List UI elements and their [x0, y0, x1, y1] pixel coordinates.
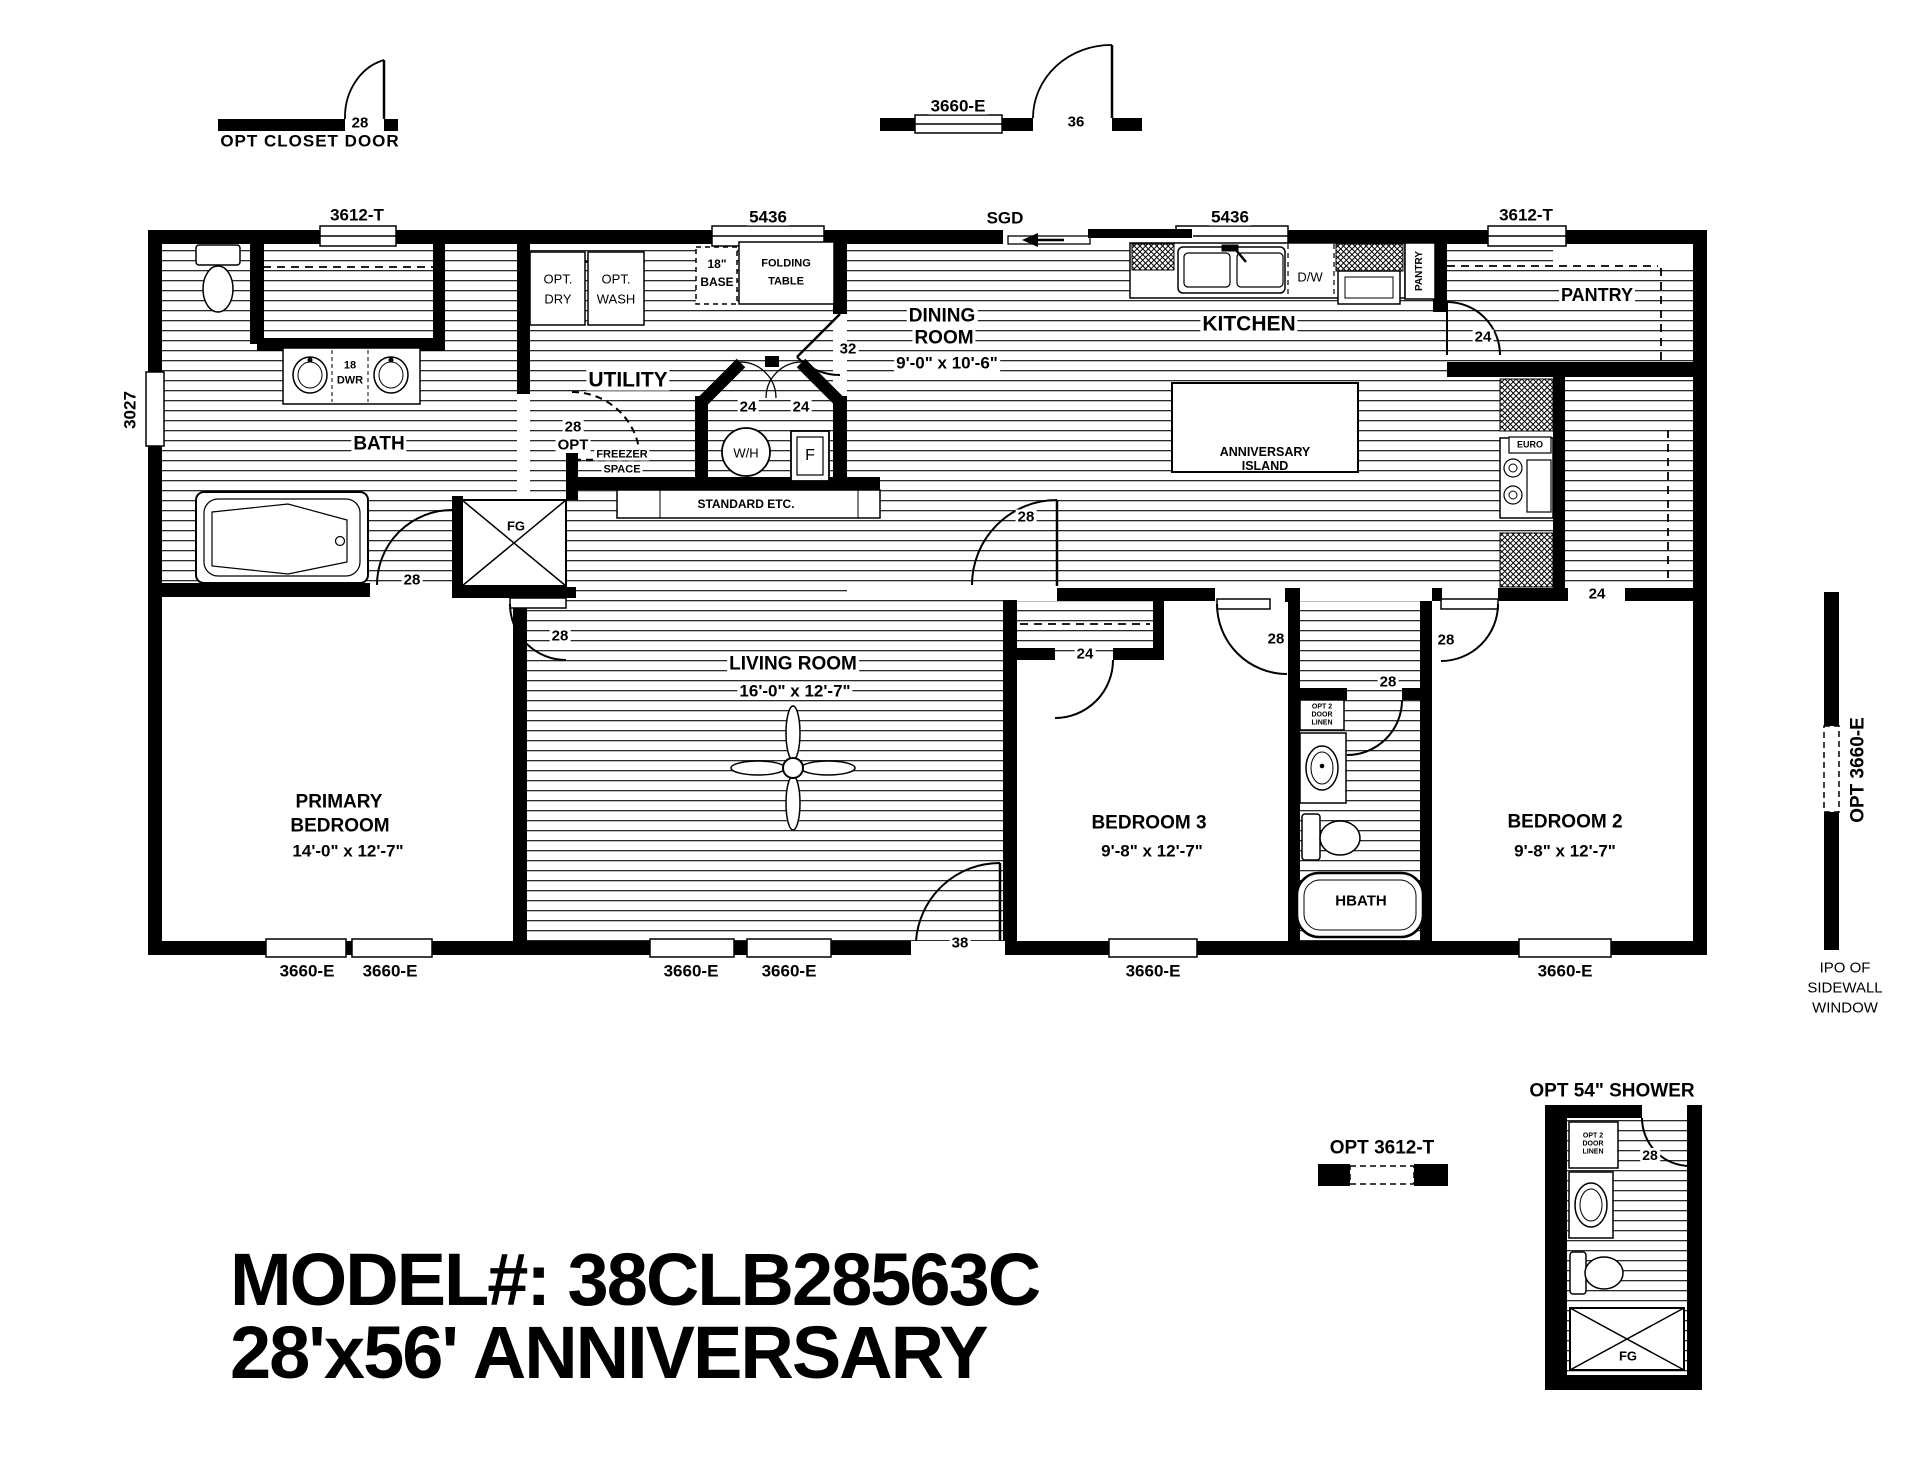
- linen-label-2: DOOR: [1310, 712, 1335, 719]
- island-label-1: ANNIVERSARY: [1218, 446, 1313, 459]
- window-label-3660e-3: 3660-E: [662, 963, 721, 980]
- primary-door-size: 28: [550, 629, 571, 644]
- kitchen-label: KITCHEN: [1200, 314, 1297, 335]
- bed3-closet-door-size: 24: [1075, 647, 1096, 662]
- standard-etc-label: STANDARD ETC.: [695, 498, 796, 510]
- window-label-3660e-1: 3660-E: [278, 963, 337, 980]
- bath-opt-door-size-1: 28: [563, 420, 584, 435]
- utility-label: UTILITY: [586, 370, 669, 391]
- folding-table-label-2: TABLE: [766, 277, 806, 288]
- water-heater-label: W/H: [731, 447, 760, 460]
- wh-door-size-1: 24: [738, 400, 759, 415]
- base-cabinet-label-2: BASE: [698, 276, 735, 288]
- bath-label: BATH: [351, 435, 406, 454]
- bed2-dims: 9'-8" x 12'-7": [1512, 843, 1618, 860]
- bed2-label: BEDROOM 2: [1505, 813, 1624, 832]
- window-label-3612t-left: 3612-T: [328, 207, 386, 224]
- sidewall-opt-label: OPT 3660-E: [1849, 715, 1868, 825]
- bed3-door-size: 28: [1266, 632, 1287, 647]
- pantry-door-size: 24: [1473, 330, 1494, 345]
- floorplan-page: OPT CLOSET DOOR 28 3660-E 36 3612-T 5436…: [0, 0, 1920, 1484]
- window-label-3660e-4: 3660-E: [760, 963, 819, 980]
- linen2-label-1: OPT 2: [1581, 1133, 1605, 1140]
- dining-label-2: ROOM: [912, 329, 975, 348]
- pantry-label: PANTRY: [1559, 286, 1635, 304]
- dining-label-1: DINING: [907, 307, 978, 326]
- opt-dry-label-1: OPT.: [542, 273, 575, 286]
- folding-table-label-1: FOLDING: [759, 259, 813, 270]
- dining-dims: 9'-0" x 10'-6": [894, 355, 1000, 372]
- linen-label-3: LINEN: [1310, 720, 1335, 727]
- euro-range-label: EURO: [1515, 441, 1545, 450]
- window-label-3027: 3027: [122, 389, 139, 431]
- legend-door-size: 36: [1066, 115, 1087, 130]
- primary-label-2: BEDROOM: [288, 817, 391, 836]
- opt-dry-label-2: DRY: [542, 293, 573, 306]
- sidewall-note-2: SIDEWALL: [1805, 981, 1884, 996]
- window-label-3660e-5: 3660-E: [1124, 963, 1183, 980]
- window-label-3660e-6: 3660-E: [1536, 963, 1595, 980]
- freezer-space-label-2: SPACE: [601, 465, 642, 476]
- hbath-door-size: 28: [1378, 675, 1399, 690]
- furnace-label: F: [803, 448, 817, 464]
- opt-wash-label-2: WASH: [595, 293, 638, 306]
- window-label-3660e-2: 3660-E: [361, 963, 420, 980]
- living-label: LIVING ROOM: [727, 655, 859, 674]
- model-size-title: 28'x56' ANNIVERSARY: [230, 1317, 987, 1389]
- model-number-title: MODEL#: 38CLB28563C: [230, 1244, 1039, 1316]
- utility-door-size: 32: [838, 342, 859, 357]
- hall-door-size: 28: [1016, 510, 1037, 525]
- floor-hatching: [162, 244, 1693, 1375]
- bath-opt-door-size-2: OPT: [556, 438, 591, 453]
- bed2-closet-door-size: 24: [1587, 587, 1608, 602]
- freezer-space-label-1: FREEZER: [594, 450, 649, 461]
- bed3-label: BEDROOM 3: [1089, 814, 1208, 833]
- opt-wash-label-1: OPT.: [600, 273, 633, 286]
- bed2-door-size: 28: [1436, 633, 1457, 648]
- legend-window-label: 3660-E: [929, 98, 988, 115]
- fg-shower-label: FG: [505, 520, 527, 533]
- opt-3612-label: OPT 3612-T: [1328, 1139, 1437, 1158]
- hbath-label: HBATH: [1333, 894, 1388, 909]
- window-label-3612t-right: 3612-T: [1497, 207, 1555, 224]
- dwr-label-1: 18: [342, 361, 358, 372]
- linen2-label-3: LINEN: [1581, 1149, 1606, 1156]
- base-cabinet-label-1: 18": [705, 258, 728, 270]
- linen-label-1: OPT 2: [1310, 704, 1334, 711]
- pantry-cabinet-label: PANTRY: [1415, 249, 1425, 293]
- window-label-5436-left: 5436: [747, 209, 789, 226]
- legend-closet-size: 28: [350, 116, 371, 131]
- bath-door-size: 28: [402, 573, 423, 588]
- dwr-label-2: DWR: [335, 376, 365, 387]
- entry-door-size: 38: [950, 936, 971, 951]
- window-label-5436-right: 5436: [1209, 209, 1251, 226]
- shower-detail-door-size: 28: [1640, 1148, 1660, 1162]
- dishwasher-label: D/W: [1295, 271, 1324, 284]
- legend-closet-door-label: OPT CLOSET DOOR: [218, 133, 401, 150]
- linen2-label-2: DOOR: [1581, 1141, 1606, 1148]
- bed3-dims: 9'-8" x 12'-7": [1099, 843, 1205, 860]
- primary-dims: 14'-0" x 12'-7": [290, 843, 405, 860]
- living-dims: 16'-0" x 12'-7": [737, 683, 852, 700]
- shower-option-title: OPT 54" SHOWER: [1527, 1082, 1696, 1101]
- sidewall-note-3: WINDOW: [1810, 1001, 1880, 1016]
- sgd-label: SGD: [985, 210, 1026, 227]
- sidewall-note-1: IPO OF: [1818, 961, 1873, 976]
- island-label-2: ISLAND: [1240, 460, 1291, 473]
- wh-door-size-2: 24: [791, 400, 812, 415]
- fg-shower2-label: FG: [1617, 1350, 1639, 1363]
- primary-label-1: PRIMARY: [294, 793, 385, 812]
